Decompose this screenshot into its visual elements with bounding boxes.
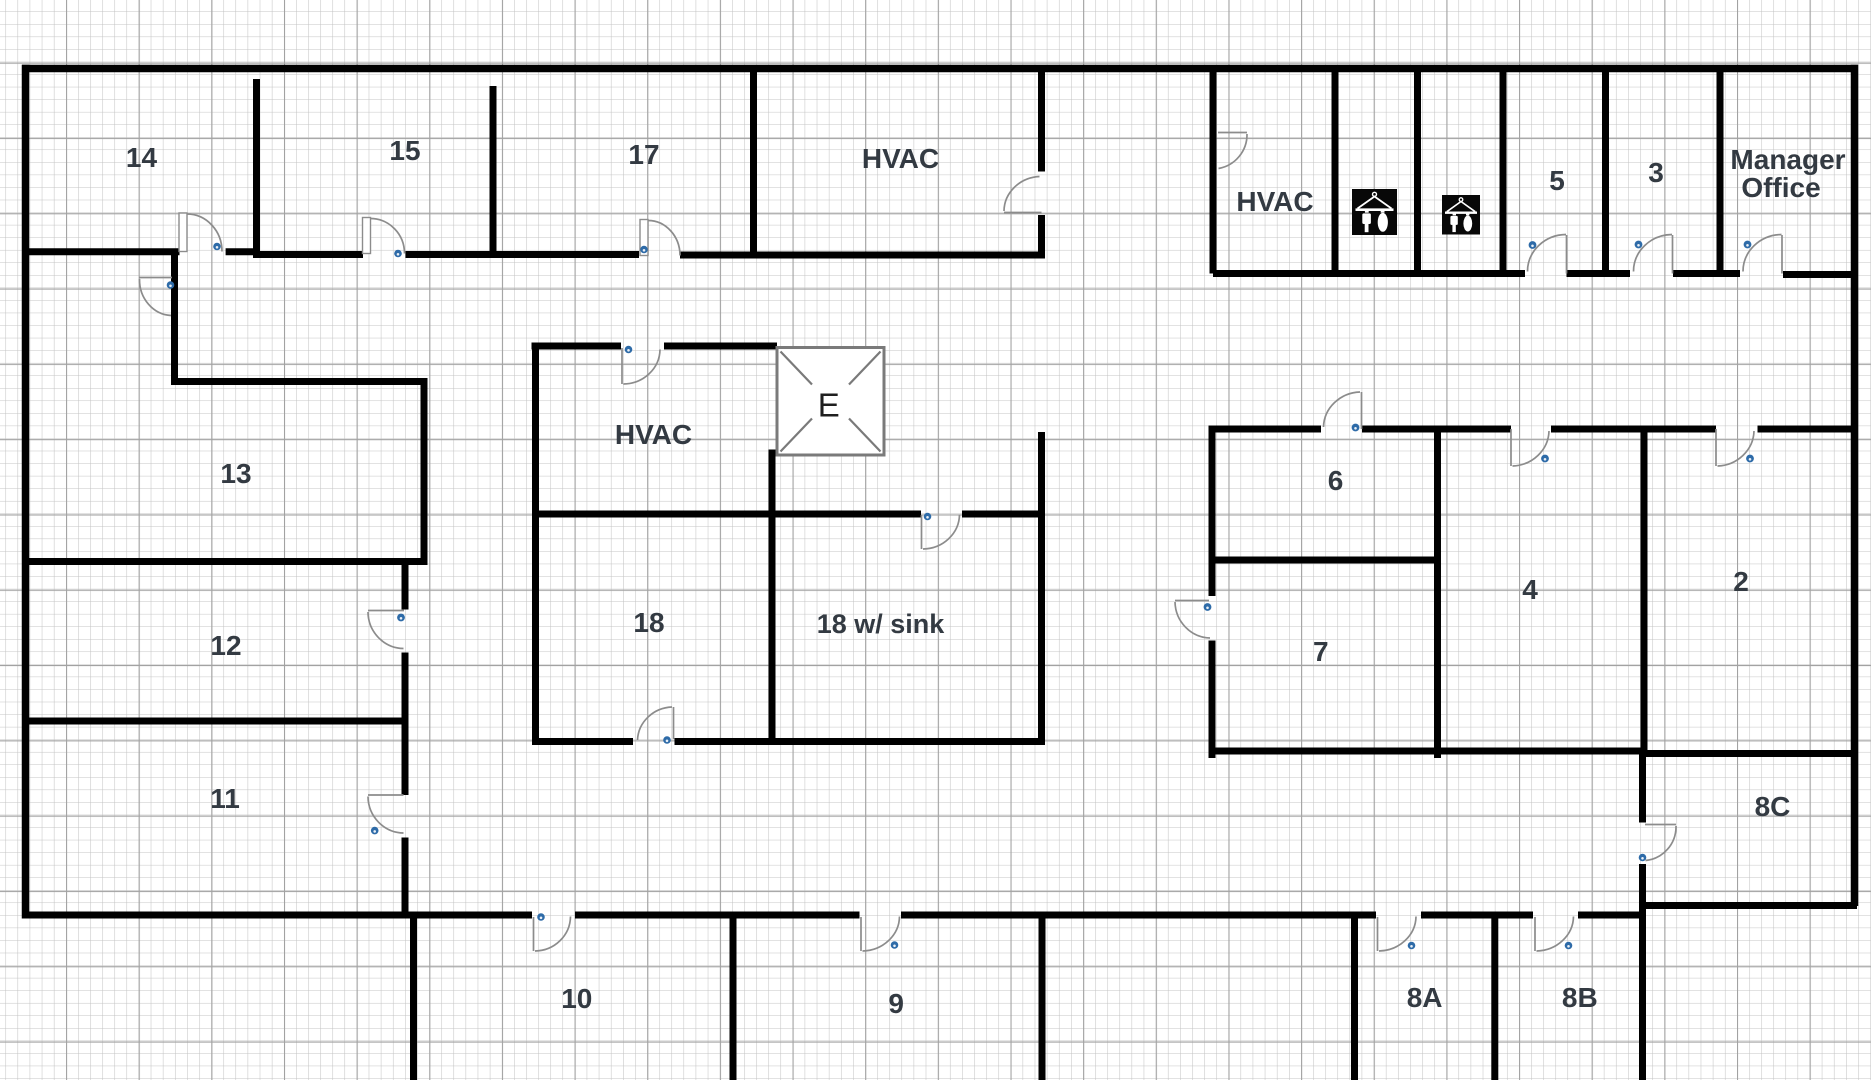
svg-text:HVAC: HVAC bbox=[615, 419, 692, 450]
svg-text:18: 18 bbox=[633, 607, 664, 638]
svg-text:17: 17 bbox=[628, 139, 659, 170]
svg-text:12: 12 bbox=[210, 630, 241, 661]
svg-text:Manager: Manager bbox=[1730, 144, 1845, 175]
svg-text:9: 9 bbox=[888, 988, 904, 1019]
svg-text:6: 6 bbox=[1328, 465, 1344, 496]
svg-text:10: 10 bbox=[561, 983, 592, 1014]
svg-text:8B: 8B bbox=[1562, 982, 1598, 1013]
svg-text:5: 5 bbox=[1549, 165, 1565, 196]
svg-text:HVAC: HVAC bbox=[1236, 186, 1313, 217]
svg-text:HVAC: HVAC bbox=[862, 143, 939, 174]
svg-text:E: E bbox=[818, 387, 840, 424]
svg-text:3: 3 bbox=[1648, 157, 1664, 188]
svg-text:8A: 8A bbox=[1407, 982, 1443, 1013]
svg-text:11: 11 bbox=[210, 783, 240, 814]
svg-text:7: 7 bbox=[1313, 636, 1329, 667]
svg-text:14: 14 bbox=[126, 142, 158, 173]
svg-text:Office: Office bbox=[1741, 172, 1820, 203]
svg-text:8C: 8C bbox=[1755, 791, 1791, 822]
svg-text:4: 4 bbox=[1522, 574, 1538, 605]
svg-text:13: 13 bbox=[220, 458, 251, 489]
svg-text:18 w/ sink: 18 w/ sink bbox=[817, 609, 946, 639]
svg-text:15: 15 bbox=[389, 135, 420, 166]
svg-text:2: 2 bbox=[1733, 566, 1749, 597]
